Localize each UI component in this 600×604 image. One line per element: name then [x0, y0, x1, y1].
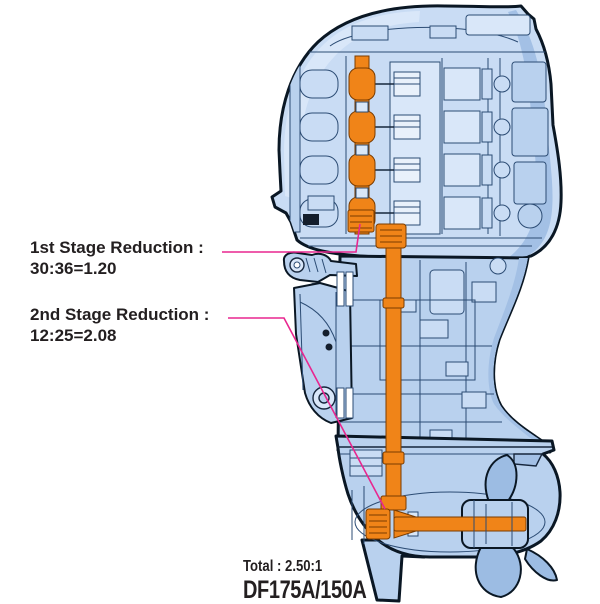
engine-cowling [272, 6, 561, 262]
first-stage-value: 30:36=1.20 [30, 258, 204, 279]
propeller-blade-bottom [476, 543, 521, 597]
outboard-reduction-diagram-page: 1st Stage Reduction : 30:36=1.20 2nd Sta… [0, 0, 600, 604]
forward-gear [366, 509, 390, 539]
first-stage-title: 1st Stage Reduction : [30, 237, 204, 258]
first-stage-annotation: 1st Stage Reduction : 30:36=1.20 [30, 237, 204, 279]
bracket-bolt [326, 344, 333, 351]
bracket-bolt [323, 330, 330, 337]
propeller-blade-rear [525, 549, 557, 580]
propeller-shaft [394, 517, 526, 531]
footer-caption: Total : 2.50:1 DF175A/150A [243, 558, 397, 603]
second-stage-value: 12:25=2.08 [30, 325, 209, 346]
model-name-text: DF175A/150A [243, 577, 366, 603]
midsection [338, 256, 550, 452]
second-stage-title: 2nd Stage Reduction : [30, 304, 209, 325]
accessory-blocks [512, 62, 548, 228]
relay-box [303, 214, 319, 225]
first-stage-drive-gear [348, 210, 374, 232]
outboard-motor-cutaway-diagram [0, 0, 600, 604]
second-stage-annotation: 2nd Stage Reduction : 12:25=2.08 [30, 304, 209, 346]
total-ratio-text: Total : 2.50:1 [243, 558, 370, 575]
